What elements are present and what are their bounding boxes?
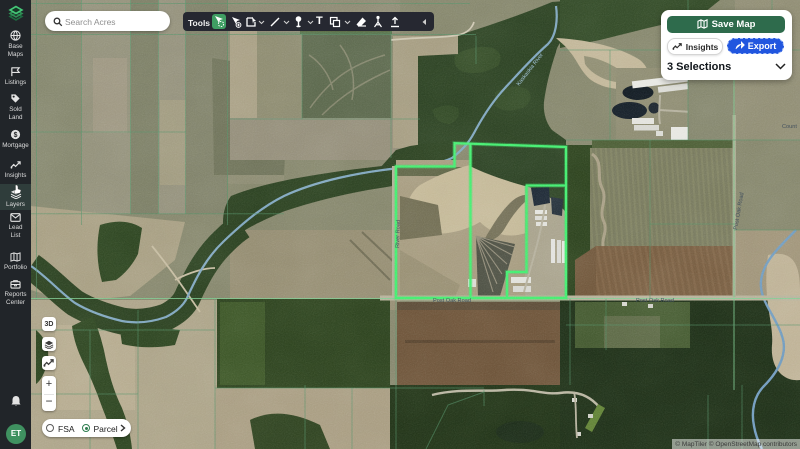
svg-text:Post Oak Road: Post Oak Road — [636, 298, 674, 304]
svg-text:River Road: River Road — [395, 220, 402, 248]
svg-text:Count: Count — [782, 124, 797, 130]
svg-text:$: $ — [14, 132, 18, 139]
svg-text:Post Oak Road: Post Oak Road — [433, 298, 471, 304]
